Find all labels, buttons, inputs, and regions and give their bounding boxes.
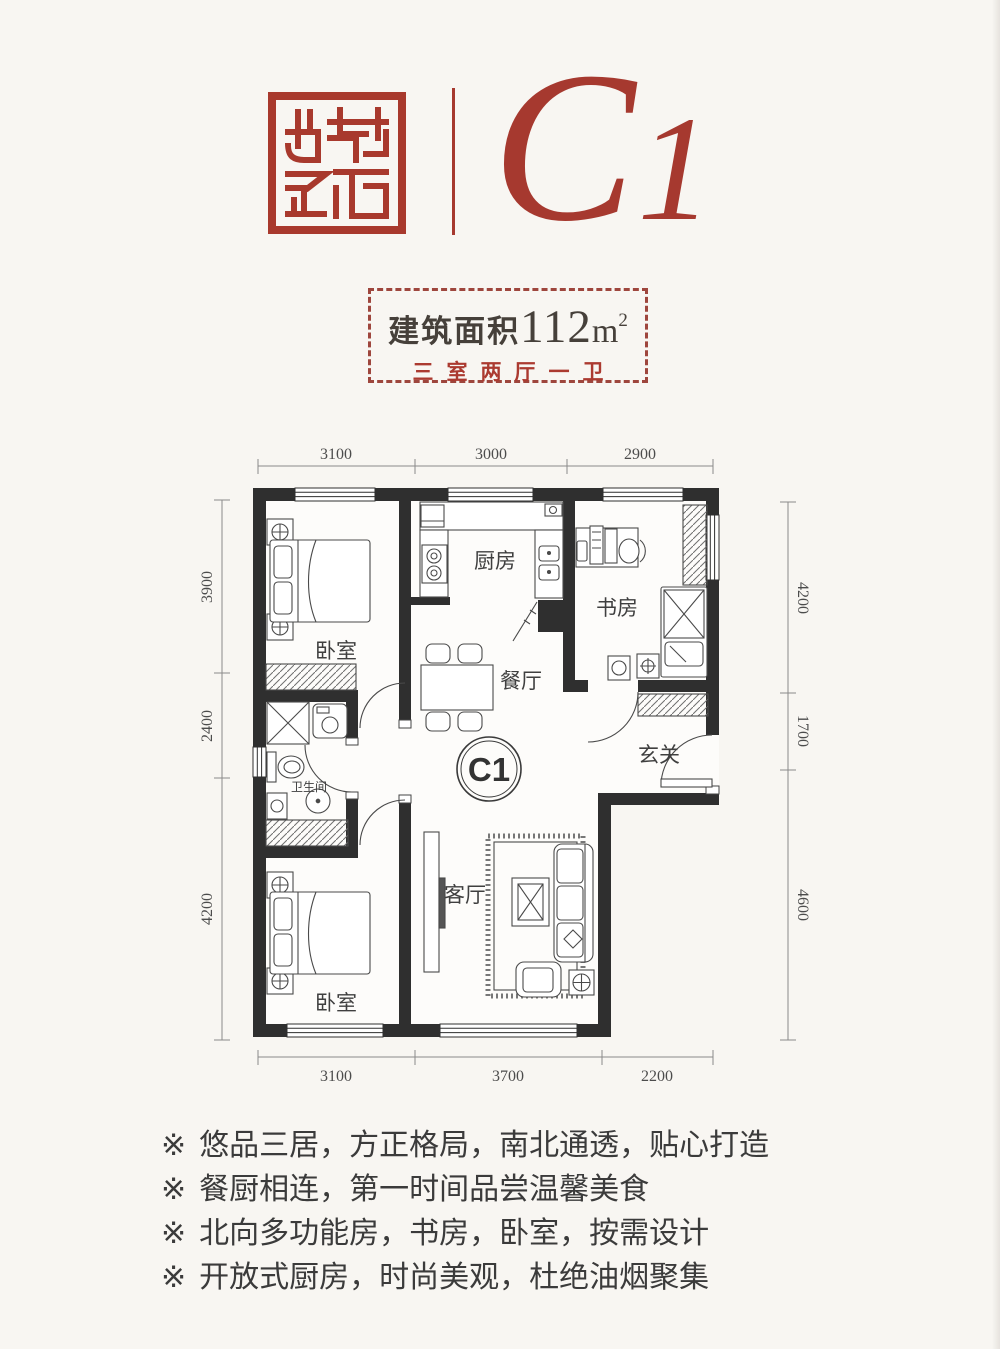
- gas-meter: [545, 504, 562, 516]
- dim-bottom-2: 3700: [492, 1068, 524, 1085]
- dim-top-1: 3100: [320, 446, 352, 463]
- label-bathroom: 卫生间: [291, 780, 327, 794]
- feature-text: 悠品三居，方正格局，南北通透，贴心打造: [199, 1129, 769, 1162]
- plant-stand: [637, 654, 659, 678]
- label-dining: 餐厅: [500, 669, 542, 693]
- window-living: [440, 1024, 577, 1037]
- label-study: 书房: [596, 596, 638, 620]
- dining-chair: [458, 712, 482, 731]
- feature-item: ※北向多功能房，书房，卧室，按需设计: [161, 1212, 769, 1256]
- sofa: [554, 844, 593, 962]
- shower: [267, 702, 309, 744]
- wardrobe: [683, 505, 707, 585]
- feature-text: 餐厨相连，第一时间品尝温馨美食: [199, 1173, 649, 1206]
- label-living: 客厅: [444, 883, 486, 907]
- dim-right-1: 4200: [794, 582, 811, 614]
- feature-marker: ※: [161, 1129, 186, 1162]
- entry-closet: [638, 694, 708, 716]
- scan-edge: [992, 0, 1000, 1349]
- dining-chair: [426, 712, 450, 731]
- window-study: [603, 488, 683, 501]
- label-foyer: 玄关: [638, 743, 680, 767]
- water-heater: [608, 656, 630, 680]
- brochure-page: C 1 建筑面积112m2 三室两厅一卫 3100 3000 2900 310: [0, 0, 1000, 1349]
- dining-chair: [426, 644, 450, 663]
- dim-bottom-1: 3100: [320, 1068, 352, 1085]
- label-kitchen: 厨房: [474, 549, 516, 573]
- feature-marker: ※: [161, 1173, 186, 1206]
- armchair: [516, 962, 561, 997]
- feature-text: 北向多功能房，书房，卧室，按需设计: [199, 1217, 709, 1250]
- dim-right-2: 1700: [794, 715, 811, 747]
- dim-left-1: 3900: [199, 571, 216, 603]
- dining-table: [421, 665, 493, 710]
- feature-item: ※开放式厨房，时尚美观，杜绝油烟聚集: [161, 1256, 769, 1300]
- window-kitchen: [448, 488, 533, 501]
- dim-left-2: 2400: [199, 710, 216, 742]
- washing-machine: [313, 704, 347, 738]
- storage-closet: [266, 820, 348, 846]
- feature-marker: ※: [161, 1217, 186, 1250]
- fridge: [421, 505, 444, 527]
- feature-item: ※餐厨相连，第一时间品尝温馨美食: [161, 1168, 769, 1212]
- feature-marker: ※: [161, 1261, 186, 1294]
- unit-badge: C1: [457, 737, 521, 801]
- window-bathroom: [253, 747, 266, 777]
- entry-door-leaf: [661, 779, 712, 787]
- stove: [422, 545, 447, 583]
- dining-chair: [458, 644, 482, 663]
- feature-text: 开放式厨房，时尚美观，杜绝油烟聚集: [199, 1261, 709, 1294]
- floor-outlet: [569, 970, 594, 995]
- feature-item: ※悠品三居，方正格局，南北通透，贴心打造: [161, 1124, 769, 1168]
- dim-top-2: 3000: [475, 446, 507, 463]
- furniture-bedroom-north: [266, 519, 370, 690]
- label-bedroom-south: 卧室: [315, 991, 357, 1015]
- counter-right: [535, 530, 563, 598]
- dim-right-3: 4600: [794, 889, 811, 921]
- single-bed: [661, 587, 707, 677]
- unit-badge-label: C1: [468, 751, 510, 788]
- hand-basin: [267, 793, 287, 819]
- dim-left-3: 4200: [199, 893, 216, 925]
- coffee-table: [512, 878, 549, 926]
- double-bed: [270, 540, 370, 622]
- label-bedroom-north: 卧室: [315, 639, 357, 663]
- wardrobe: [266, 664, 356, 690]
- dim-bottom-3: 2200: [641, 1068, 673, 1085]
- double-bed: [270, 892, 370, 974]
- window-bedroom-south: [287, 1024, 383, 1037]
- feature-list: ※悠品三居，方正格局，南北通透，贴心打造 ※餐厨相连，第一时间品尝温馨美食 ※北…: [161, 1124, 769, 1300]
- dim-top-3: 2900: [624, 446, 656, 463]
- window-bedroom-north: [295, 488, 375, 501]
- window-study-east: [706, 515, 719, 580]
